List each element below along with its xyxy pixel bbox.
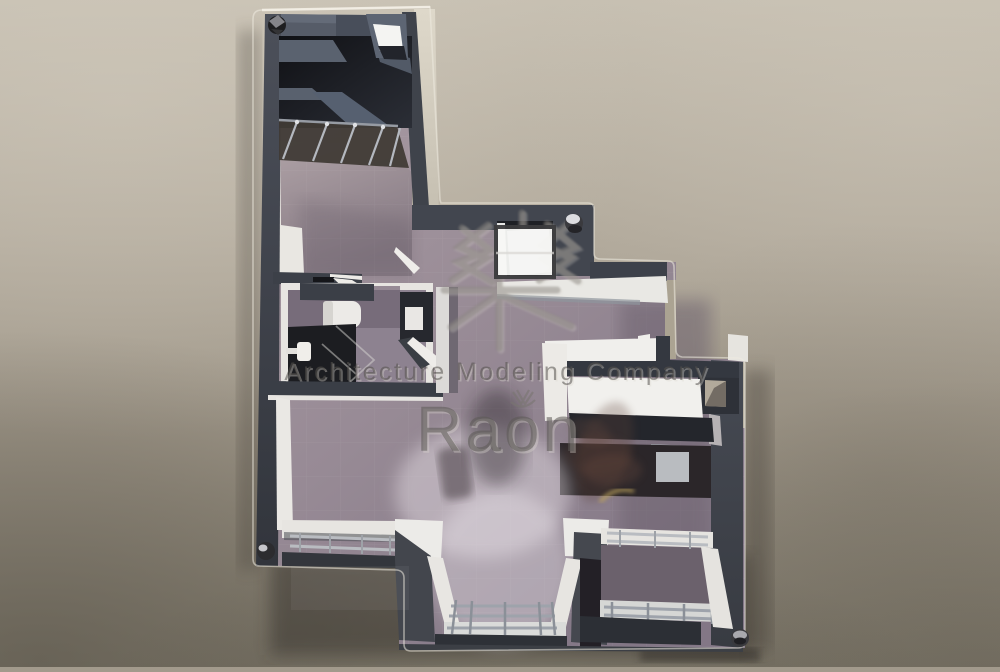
svg-text:Raon: Raon [416,393,581,465]
svg-text:Architecture Modeling Company: Architecture Modeling Company [284,358,709,386]
